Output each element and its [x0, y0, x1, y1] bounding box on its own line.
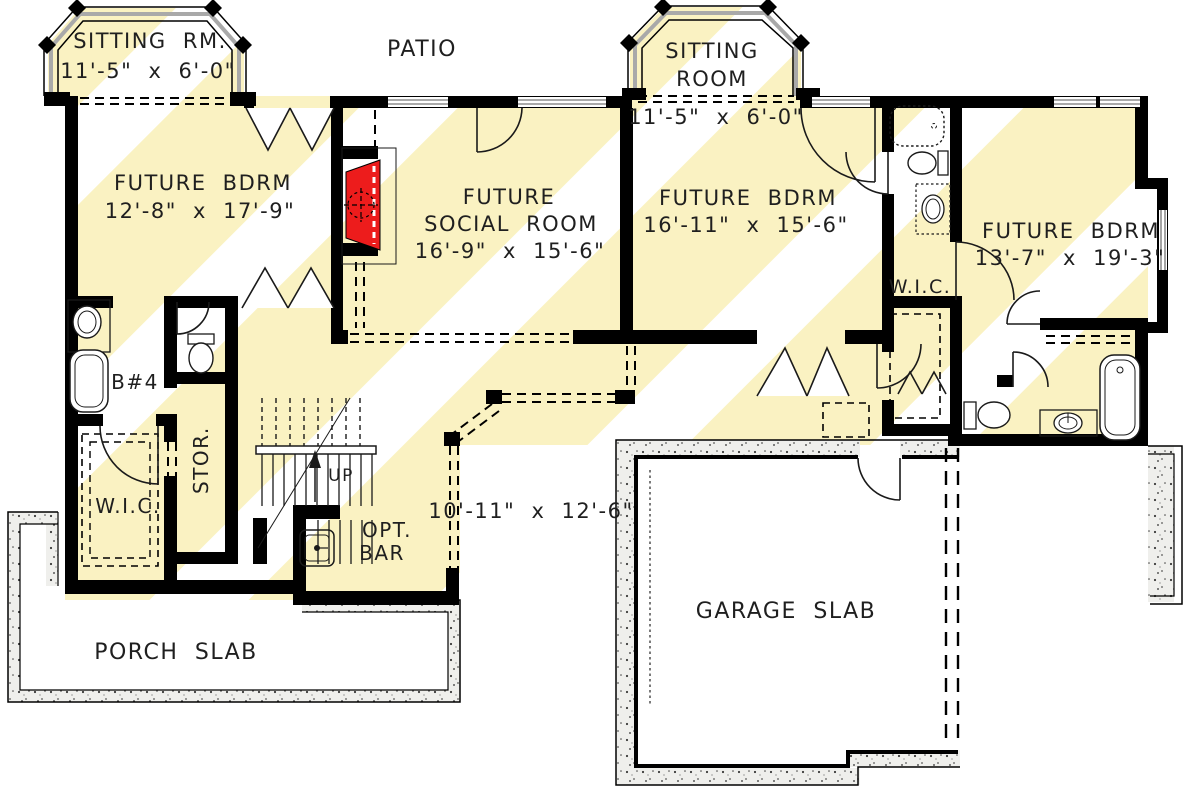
floor-plan-drawing: SITTING RM. 11'-5" x 6'-0" PATIO SITTING…: [0, 0, 1190, 800]
storage-label: STOR.: [189, 426, 213, 494]
window: [1054, 97, 1096, 107]
bar-label-2: BAR: [359, 541, 405, 565]
bedroom-right-dims: 13'-7" x 19'-3": [975, 246, 1165, 270]
bathtub-b4: [70, 350, 108, 412]
window: [812, 97, 870, 107]
bath4-label: B#4: [111, 370, 159, 394]
sitting-right-name-1: SITTING: [665, 39, 759, 63]
garage-slab-label: GARAGE SLAB: [696, 599, 876, 624]
floor-plan-page: SITTING RM. 11'-5" x 6'-0" PATIO SITTING…: [0, 0, 1190, 800]
bedroom-left-name: FUTURE BDRM: [114, 171, 292, 195]
toilet-b4: [188, 334, 214, 373]
bedroom-right-name: FUTURE BDRM: [982, 219, 1160, 243]
social-room-name-2: SOCIAL ROOM: [424, 212, 598, 236]
toilet-upper-bath: [908, 151, 948, 175]
sitting-left-name: SITTING RM.: [73, 29, 227, 53]
social-room-name-1: FUTURE: [463, 185, 556, 209]
toilet-lower-bath: [964, 402, 1010, 429]
window: [1100, 97, 1140, 107]
bedroom-mid-name: FUTURE BDRM: [659, 186, 837, 210]
structural-post: [615, 390, 635, 404]
wic-right-label: W.I.C.: [889, 276, 952, 298]
bathtub-lower-bath: [1100, 355, 1140, 440]
foundation-step: [1148, 446, 1174, 602]
sitting-left-dims: 11'-5" x 6'-0": [60, 59, 236, 83]
bedroom-left-dims: 12'-8" x 17'-9": [105, 199, 295, 223]
rec-area-dims: 10'-11" x 12'-6": [428, 499, 633, 523]
sitting-right-name-2: ROOM: [676, 67, 748, 91]
structural-post: [444, 432, 460, 446]
window: [388, 97, 448, 107]
up-label: UP: [328, 466, 354, 486]
window: [518, 97, 606, 107]
porch-slab-label: PORCH SLAB: [94, 640, 258, 665]
social-room-dims: 16'-9" x 15'-6": [415, 239, 605, 263]
patio-label: PATIO: [387, 37, 457, 62]
bar-label-1: OPT.: [362, 518, 412, 542]
bedroom-mid-dims: 16'-11" x 15'-6": [643, 213, 848, 237]
door-garage: [858, 458, 900, 500]
structural-post: [486, 390, 502, 404]
sitting-right-dims: 11'-5" x 6'-0": [628, 105, 804, 129]
wic-left-label: W.I.C.: [95, 494, 160, 518]
